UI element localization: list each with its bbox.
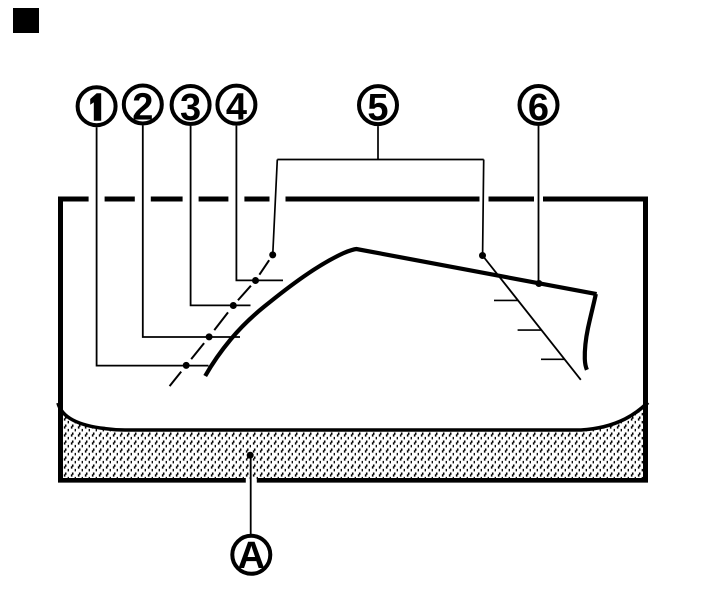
- svg-text:2: 2: [132, 86, 153, 128]
- svg-text:6: 6: [528, 87, 549, 129]
- svg-text:5: 5: [367, 87, 388, 129]
- svg-text:4: 4: [226, 86, 247, 128]
- svg-text:A: A: [238, 535, 265, 577]
- svg-text:3: 3: [180, 87, 201, 129]
